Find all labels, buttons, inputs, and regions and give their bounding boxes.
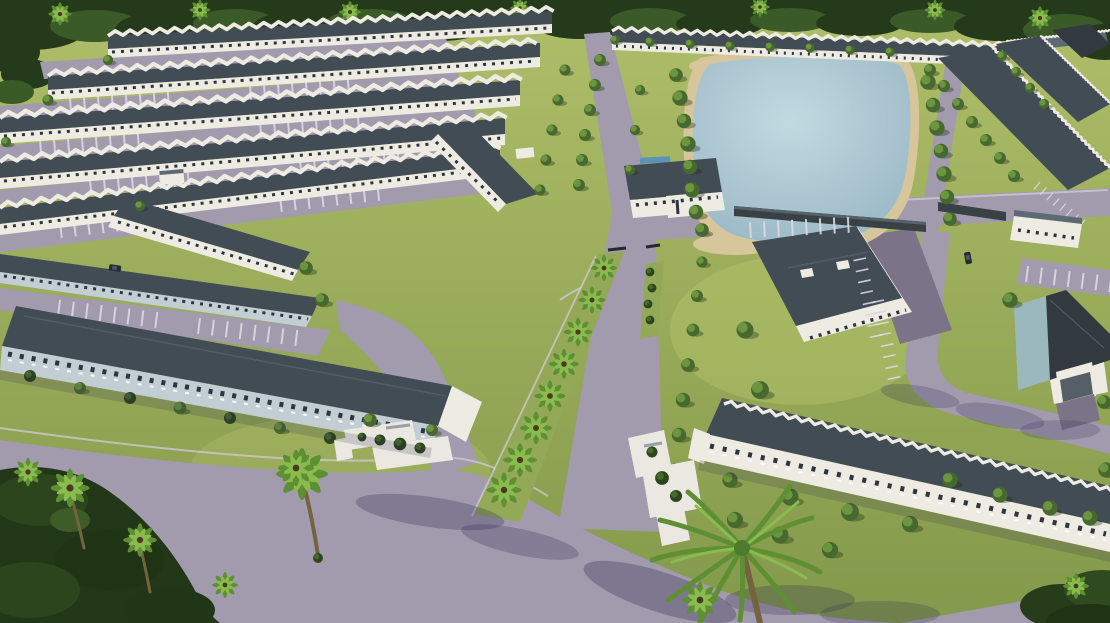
lakeside-clubhouse <box>624 156 725 218</box>
community-aerial-rendering <box>0 0 1110 623</box>
aerial-render-viewport <box>0 0 1110 623</box>
